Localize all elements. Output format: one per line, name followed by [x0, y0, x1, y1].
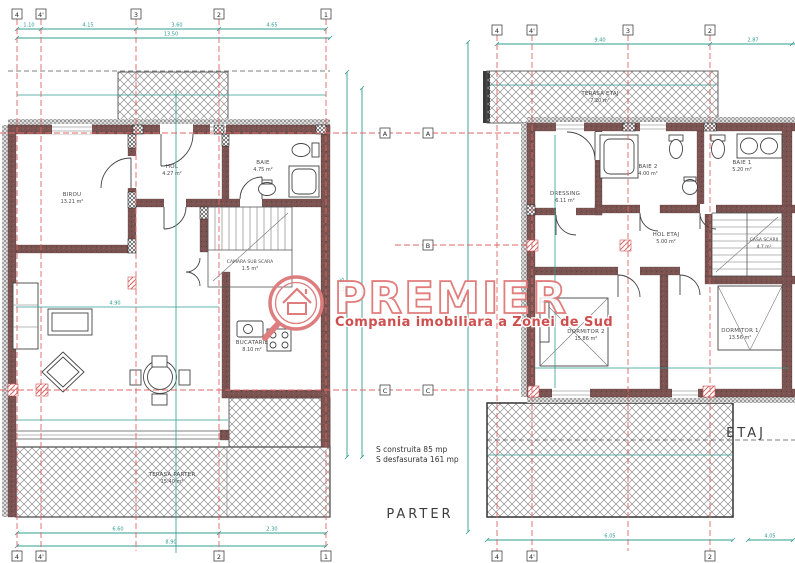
etaj-wall-bath-b [660, 205, 700, 213]
etaj-wall-bedroom-sep-b [640, 267, 680, 275]
parter-furniture [13, 143, 319, 405]
etaj-insulation-left [521, 123, 527, 397]
watermark: PREMIER Compania imobiliara a Zonei de S… [265, 273, 613, 338]
parter-camara-door [186, 258, 200, 286]
svg-text:2.30: 2.30 [266, 527, 277, 533]
room-label-baie2: BAIE 2 [638, 164, 657, 170]
svg-text:5.20 m²: 5.20 m² [732, 167, 752, 173]
parter-entry-door [161, 134, 193, 166]
parter-birou-door [101, 158, 131, 188]
svg-text:4: 4 [15, 11, 19, 19]
svg-text:13.50: 13.50 [164, 32, 178, 38]
room-label-baie1: BAIE 1 [732, 160, 751, 166]
floor-plan-sheet: BIROU 13.21 m² HOL 4.27 m² BAIE 4.75 m² … [0, 0, 795, 563]
sink-1b [761, 138, 778, 154]
room-label-baie: BAIE [256, 160, 270, 166]
room-label-dormitor1: DORMITOR 1 [721, 328, 759, 334]
etaj-column-marked-3 [528, 386, 539, 397]
svg-text:4.65: 4.65 [266, 23, 277, 29]
plan-title-parter: PARTER [386, 507, 453, 522]
chair-n [152, 356, 167, 367]
svg-text:2: 2 [217, 553, 221, 561]
parter-terraces [8, 71, 330, 517]
etaj-grid-bubbles-bottom: 4 4' 2 [492, 551, 715, 561]
svg-text:6.60: 6.60 [112, 527, 123, 533]
room-label-casa-scarii: CASA SCARII [750, 237, 779, 243]
parter-wall-birou-bottom [16, 245, 128, 253]
etaj-top-terrace-hatch [487, 71, 718, 123]
parter-grid-bubbles-top: 4 4' 3 2 1 [12, 9, 331, 19]
baie1-fixtures [711, 134, 782, 159]
svg-text:4.75 m²: 4.75 m² [253, 167, 273, 173]
room-label-terasa-parter: TERASA PARTER [148, 472, 196, 478]
etaj-column-marked-2 [620, 240, 631, 251]
svg-text:7.20 m²: 7.20 m² [590, 98, 610, 104]
svg-text:4: 4 [495, 553, 499, 561]
room-label-camara: CAMARA SUB SCARA [227, 259, 274, 265]
etaj-wall-bedroom-divider [660, 275, 668, 389]
room-label-hol-etaj: HOL ETAJ [653, 232, 680, 238]
area-summary-line1: S construita 85 mp [376, 445, 448, 454]
dim-label: 1.10 [23, 23, 34, 29]
svg-text:2: 2 [217, 11, 221, 19]
etaj-bottom-terrace-hatch [487, 403, 733, 517]
parter-plan: BIROU 13.21 m² HOL 4.27 m² BAIE 4.75 m² … [2, 9, 364, 561]
toilet [292, 144, 310, 157]
parter-wall-mid-b [186, 199, 240, 207]
area-summary-line2: S desfasurata 161 mp [376, 455, 459, 464]
svg-text:15.86 m²: 15.86 m² [575, 336, 598, 342]
svg-text:4.27 m²: 4.27 m² [162, 171, 182, 177]
etaj-wall-bath-c [716, 205, 795, 213]
svg-text:4: 4 [495, 27, 499, 35]
room-label-bucatarie: BUCATARIE [236, 340, 269, 346]
etaj-baie2-door [640, 213, 658, 231]
svg-text:4': 4' [529, 553, 535, 561]
parter-wall-mid-c [262, 199, 321, 207]
kitchen-sink [237, 321, 263, 337]
parter-side-terrace-hatch [229, 398, 330, 447]
svg-text:6.05: 6.05 [604, 534, 615, 540]
svg-text:8.90: 8.90 [165, 540, 176, 546]
svg-text:4.90: 4.90 [109, 301, 120, 307]
parter-wall-right-stub [321, 398, 330, 447]
room-label-hol: HOL [166, 164, 179, 170]
svg-text:4': 4' [38, 553, 44, 561]
svg-text:4: 4 [15, 553, 19, 561]
parter-wall-kitchen-bottom [222, 390, 330, 398]
plan-title-etaj: ETAJ [726, 426, 766, 441]
svg-text:C: C [383, 387, 388, 395]
etaj-dormitor2-door [618, 275, 640, 297]
svg-text:4.7 m²: 4.7 m² [757, 244, 772, 250]
svg-text:1.5 m²: 1.5 m² [242, 266, 258, 272]
toilet-1 [712, 140, 725, 159]
etaj-wall-right [782, 123, 792, 397]
sink-1a [741, 138, 758, 154]
etaj-column-marked-4 [703, 386, 715, 397]
etaj-column-marked-1 [527, 240, 538, 251]
etaj-wall-bath-a [595, 205, 640, 213]
etaj-wall-left [527, 123, 535, 397]
svg-text:13.21 m²: 13.21 m² [61, 199, 84, 205]
svg-text:1: 1 [324, 553, 328, 561]
etaj-dressing-door-2 [556, 215, 576, 235]
svg-text:2.87: 2.87 [747, 38, 758, 44]
svg-text:3.60: 3.60 [171, 23, 182, 29]
svg-text:4': 4' [38, 11, 44, 19]
sink-2 [683, 180, 698, 195]
svg-text:8.10 m²: 8.10 m² [242, 347, 262, 353]
etaj-wall-stairs-left [705, 213, 712, 277]
svg-text:A: A [426, 130, 431, 138]
etaj-wall-stairs-bottom [705, 276, 795, 284]
room-label-dressing: DRESSING [550, 191, 580, 197]
toilet-2 [670, 140, 683, 159]
parter-grid-bubbles-bottom: 4 4' 2 1 [12, 551, 331, 561]
svg-text:3: 3 [134, 11, 138, 19]
etaj-wall-bath-divider [697, 131, 704, 205]
svg-text:A: A [383, 130, 388, 138]
svg-text:5.00 m²: 5.00 m² [656, 239, 676, 245]
etaj-dormitor1-door [680, 275, 700, 295]
parter-hall-door [164, 207, 186, 229]
dining-table [130, 356, 190, 405]
svg-text:B: B [426, 242, 430, 250]
svg-text:4.00 m²: 4.00 m² [638, 171, 658, 177]
svg-text:4': 4' [529, 27, 535, 35]
svg-text:13.56 m²: 13.56 m² [729, 335, 752, 341]
chair-s [152, 394, 167, 405]
chair-e [179, 370, 190, 385]
etaj-stairs [712, 213, 782, 276]
parter-wall-right [321, 125, 330, 398]
chair-w [130, 370, 141, 385]
svg-text:9.40: 9.40 [594, 38, 605, 44]
svg-text:15.40 m²: 15.40 m² [161, 479, 184, 485]
svg-text:C: C [426, 387, 431, 395]
svg-text:4.15: 4.15 [82, 23, 93, 29]
parter-column-marked-3 [128, 277, 136, 289]
svg-text:6.11 m²: 6.11 m² [555, 198, 575, 204]
svg-text:3: 3 [626, 27, 630, 35]
svg-text:2: 2 [708, 553, 712, 561]
room-label-terasa-etaj: TERASA ETAJ [580, 91, 618, 97]
sofa [13, 283, 92, 349]
watermark-tagline: Compania imobiliara a Zonei de Sud [335, 315, 613, 330]
premier-logo-icon [265, 277, 322, 338]
etaj-dressing-door [567, 132, 595, 160]
etaj-grid-bubbles-top: 4 4' 3 2 [492, 25, 715, 35]
parter-stairs [208, 207, 292, 287]
svg-text:4.05: 4.05 [764, 534, 775, 540]
floor-plan-drawing: BIROU 13.21 m² HOL 4.27 m² BAIE 4.75 m² … [0, 0, 795, 563]
parter-entry-porch-hatch [118, 72, 228, 125]
parter-wall-kitchen-left [222, 272, 230, 398]
parter-wall-mid-a [136, 199, 164, 207]
room-label-birou: BIROU [63, 192, 82, 198]
svg-text:1: 1 [324, 11, 328, 19]
parter-insulation-left [2, 125, 8, 517]
svg-text:2: 2 [708, 27, 712, 35]
